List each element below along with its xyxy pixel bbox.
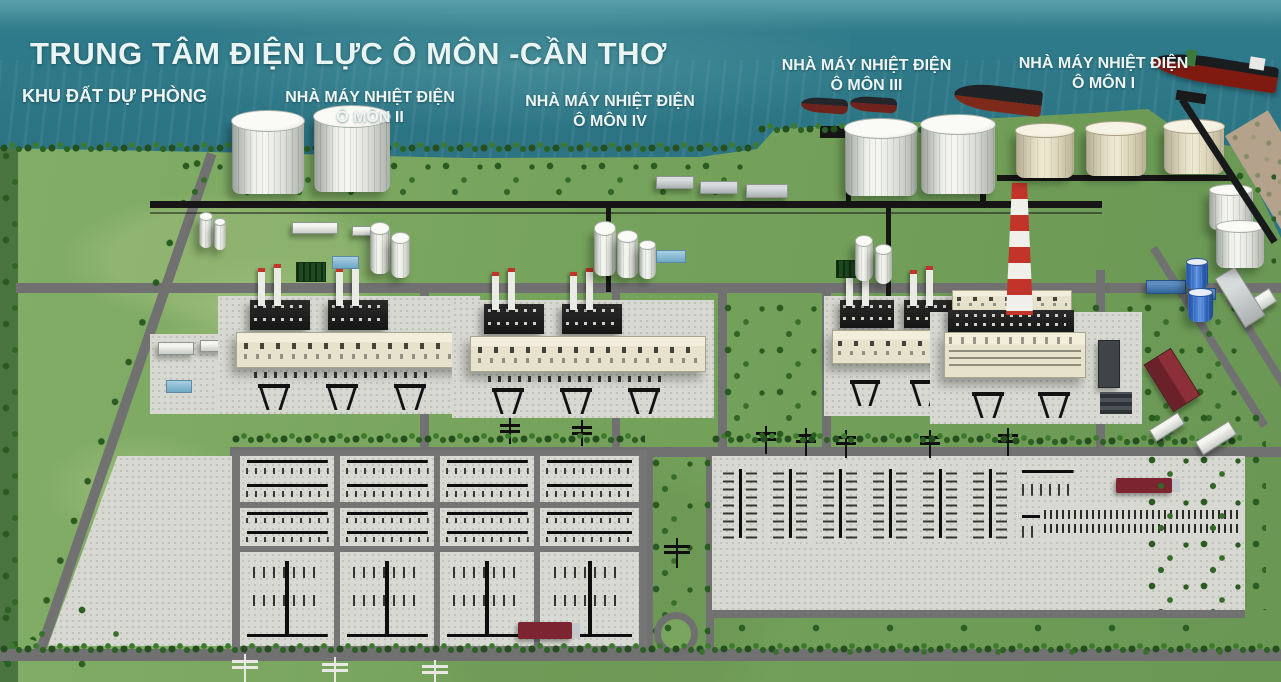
takeoff-gantry [492,388,524,414]
label-omon1: NHÀ MÁY NHIỆT ĐIỆN Ô MÔN I [991,54,1216,94]
exhaust-stack [258,268,265,306]
page-title: TRUNG TÂM ĐIỆN LỰC Ô MÔN -CẦN THƠ [30,36,667,72]
label-omon4: NHÀ MÁY NHIỆT ĐIỆN Ô MÔN IV [495,92,725,132]
small-process-tank [855,241,873,281]
exhaust-stack [586,268,593,310]
takeoff-gantry [560,388,592,414]
switchyard-bay [440,456,534,502]
storage-tank [1216,226,1264,268]
main-turbine-hall [944,332,1086,378]
exhaust-stack [570,272,577,310]
label-reserve-land: KHU ĐẤT DỰ PHÒNG [22,86,207,107]
switchyard-bay [340,456,434,502]
switchyard-bay [540,508,639,546]
label-omon4-line2: Ô MÔN IV [495,112,725,132]
takeoff-gantry [326,384,358,410]
lng-storage-tank [845,128,917,196]
switchyard-bay [540,456,639,502]
warehouse-building [656,176,694,189]
water-basin [166,380,192,393]
turbine-hall [470,336,706,372]
terraced-structure [1100,392,1132,414]
switchyard-bay [340,508,434,546]
pipe-rack-shadow-line [150,212,1102,214]
switchyard-bay [968,462,1012,544]
green-process-equipment [296,262,326,282]
switchyard-bay [340,552,434,646]
label-omon2: NHÀ MÁY NHIỆT ĐIỆN Ô MÔN II [255,88,485,128]
takeoff-gantry [258,384,290,410]
pipe-rack [150,201,1102,208]
right-yard-road [712,610,1245,618]
takeoff-gantry [972,392,1004,418]
label-omon1-line1: NHÀ MÁY NHIỆT ĐIỆN [991,54,1216,74]
transmission-tower [232,654,258,682]
warehouse-building [292,222,338,234]
blue-water-tank [1186,262,1208,290]
small-process-tank [199,216,213,248]
label-omon3-line1: NHÀ MÁY NHIỆT ĐIỆN [754,56,979,76]
exhaust-stack [910,270,917,306]
bottom-right-field-trees [660,618,1240,678]
transformer-row [488,376,668,382]
warehouse-building [746,184,788,198]
switchyard-bay [718,462,762,544]
label-omon2-line2: Ô MÔN II [255,108,485,128]
lng-storage-tank [232,120,304,194]
exhaust-stack [926,266,933,306]
small-process-tank [639,245,656,279]
takeoff-gantry [850,380,880,406]
exhaust-stack [274,264,281,306]
switchyard-bay [240,508,334,546]
transformer-row [254,372,434,378]
cooling-basin [656,250,686,263]
label-omon2-line1: NHÀ MÁY NHIỆT ĐIỆN [255,88,485,108]
label-omon4-line1: NHÀ MÁY NHIỆT ĐIỆN [495,92,725,112]
exhaust-stack [492,272,499,310]
label-omon3-line2: Ô MÔN III [754,76,979,96]
shore-road-horizontal [16,283,1281,293]
lng-storage-tank [921,124,995,194]
service-truck [518,622,572,639]
bottom-left-corner-trees [0,600,120,670]
transmission-tower [422,660,448,682]
small-process-tank [875,249,892,284]
blue-water-tank [1188,292,1213,322]
small-process-tank [214,222,226,250]
switchyard-bay [768,462,812,544]
label-omon3: NHÀ MÁY NHIỆT ĐIỆN Ô MÔN III [754,56,979,96]
transmission-tower [664,538,690,568]
exhaust-stack [336,268,343,306]
blue-building [1146,280,1186,294]
exhaust-stack [352,264,359,306]
service-building [158,342,194,355]
omon-power-center-rendering: TRUNG TÂM ĐIỆN LỰC Ô MÔN -CẦN THƠ KHU ĐẤ… [0,0,1281,682]
small-process-tank [594,228,616,276]
switchyard-bay [440,508,534,546]
switchyard-bay [918,462,962,544]
small-process-tank [370,228,390,274]
takeoff-gantry [394,384,426,410]
takeoff-gantry [1038,392,1070,418]
switchyard-bay [868,462,912,544]
small-process-tank [391,238,410,278]
fuel-oil-tank [1016,130,1074,178]
dark-service-block [1098,340,1120,388]
switchyard-bay [818,462,862,544]
mid-road-tree-row [232,430,645,446]
inter-plant-trees [722,300,818,440]
switchyard-bay [240,456,334,502]
label-omon1-line2: Ô MÔN I [991,74,1216,94]
warehouse-building [700,181,738,194]
switchyard-bay [240,552,334,646]
transmission-tower [322,657,348,682]
takeoff-gantry [628,388,660,414]
small-process-tank [617,236,638,278]
exhaust-stack [508,268,515,310]
fuel-oil-tank [1086,128,1146,176]
turbine-hall [236,332,472,368]
cooling-basin [332,256,359,269]
